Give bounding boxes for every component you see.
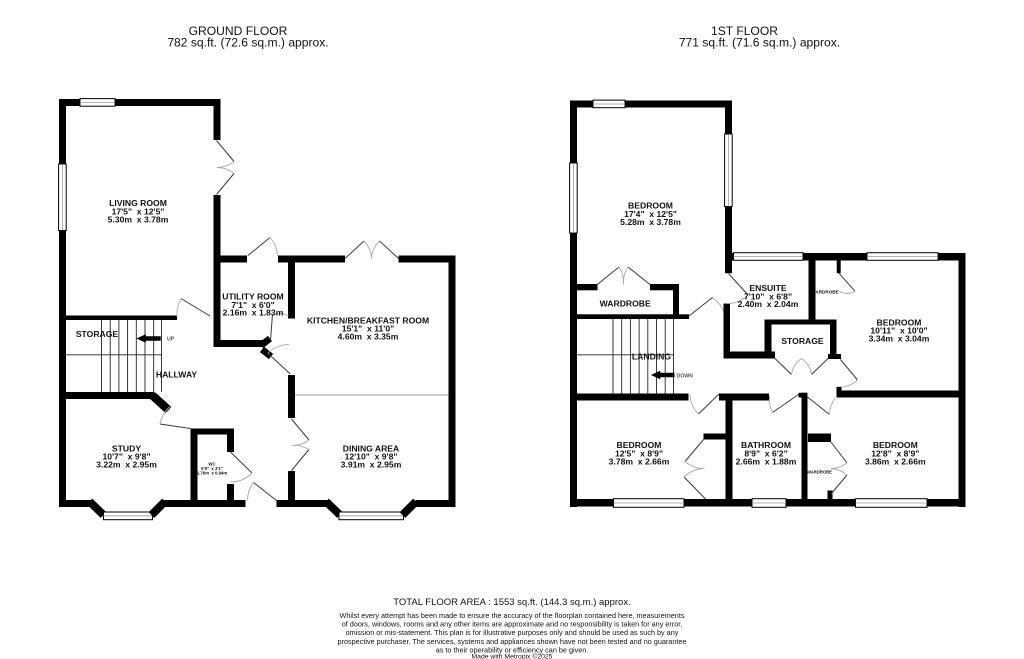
svg-text:STORAGE: STORAGE [781, 336, 824, 346]
svg-text:782 sq.ft. (72.6 sq.m.) approx: 782 sq.ft. (72.6 sq.m.) approx. [167, 36, 328, 50]
svg-text:5.28m x 3.78m: 5.28m x 3.78m [620, 217, 681, 227]
svg-text:4.60m x 3.35m: 4.60m x 3.35m [338, 331, 399, 341]
svg-text:3.86m x 2.66m: 3.86m x 2.66m [865, 456, 926, 466]
svg-text:WARDROBE: WARDROBE [811, 289, 838, 294]
svg-text:3.22m x 2.95m: 3.22m x 2.95m [96, 459, 157, 469]
svg-text:LANDING: LANDING [632, 352, 671, 362]
svg-text:WARDROBE: WARDROBE [600, 299, 651, 309]
svg-text:3.34m x 3.04m: 3.34m x 3.04m [869, 334, 930, 344]
svg-text:TOTAL FLOOR AREA : 1553 sq.ft.: TOTAL FLOOR AREA : 1553 sq.ft. (144.3 sq… [393, 597, 630, 608]
svg-text:2.16m x 1.83m: 2.16m x 1.83m [223, 308, 284, 318]
svg-text:STORAGE: STORAGE [76, 329, 119, 339]
svg-text:UP: UP [167, 336, 175, 342]
svg-text:1.76m x 0.94m: 1.76m x 0.94m [197, 471, 228, 476]
svg-text:2.66m x 1.88m: 2.66m x 1.88m [736, 456, 797, 466]
svg-text:2.40m x 2.04m: 2.40m x 2.04m [738, 299, 799, 309]
svg-text:HALLWAY: HALLWAY [156, 370, 197, 380]
svg-text:771 sq.ft. (71.6 sq.m.) approx: 771 sq.ft. (71.6 sq.m.) approx. [679, 36, 840, 50]
svg-text:3.78m x 2.66m: 3.78m x 2.66m [609, 456, 670, 466]
svg-text:5.30m x 3.78m: 5.30m x 3.78m [108, 215, 169, 225]
svg-text:Made with Metropix ©2025: Made with Metropix ©2025 [472, 653, 553, 659]
svg-text:DOWN: DOWN [677, 374, 694, 380]
svg-text:WARDROBE: WARDROBE [807, 470, 832, 475]
svg-text:3.91m x 2.95m: 3.91m x 2.95m [341, 459, 402, 469]
